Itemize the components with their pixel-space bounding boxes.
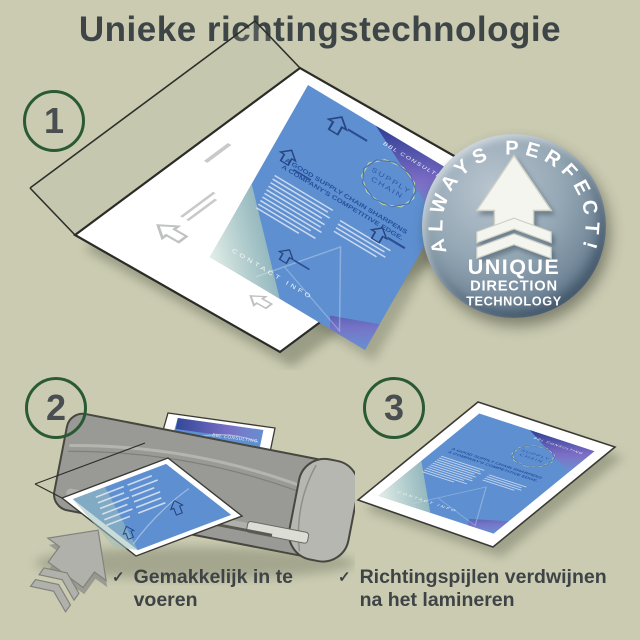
udt-badge: ALWAYS PERFECT! UNIQUE DIRECTION TECHNOL… <box>422 134 606 318</box>
step-number-1: 1 <box>23 90 85 152</box>
step-3-label: 3 <box>384 387 404 429</box>
step-number-2: 2 <box>25 377 87 439</box>
badge-line-unique: UNIQUE <box>468 255 561 279</box>
step-2-label: 2 <box>46 387 66 429</box>
badge-line-technology: TECHNOLOGY <box>466 293 562 308</box>
check-icon: ✓ <box>338 570 351 585</box>
checklist-text: Richtingspijlen verdwijnen na het lamine… <box>360 566 634 613</box>
checklist-text: Gemakkelijk in te voeren <box>134 566 308 613</box>
check-icon: ✓ <box>112 570 125 585</box>
checklist-item: ✓ Gemakkelijk in te voeren <box>112 566 308 613</box>
infographic: Unieke richtingstechnologie <box>0 0 640 640</box>
badge-line-direction: DIRECTION <box>470 279 558 295</box>
checklist-item: ✓ Richtingspijlen verdwijnen na het lami… <box>338 566 634 613</box>
step-1-label: 1 <box>44 100 64 142</box>
step-number-3: 3 <box>363 377 425 439</box>
up-arrow-icon <box>477 156 551 259</box>
